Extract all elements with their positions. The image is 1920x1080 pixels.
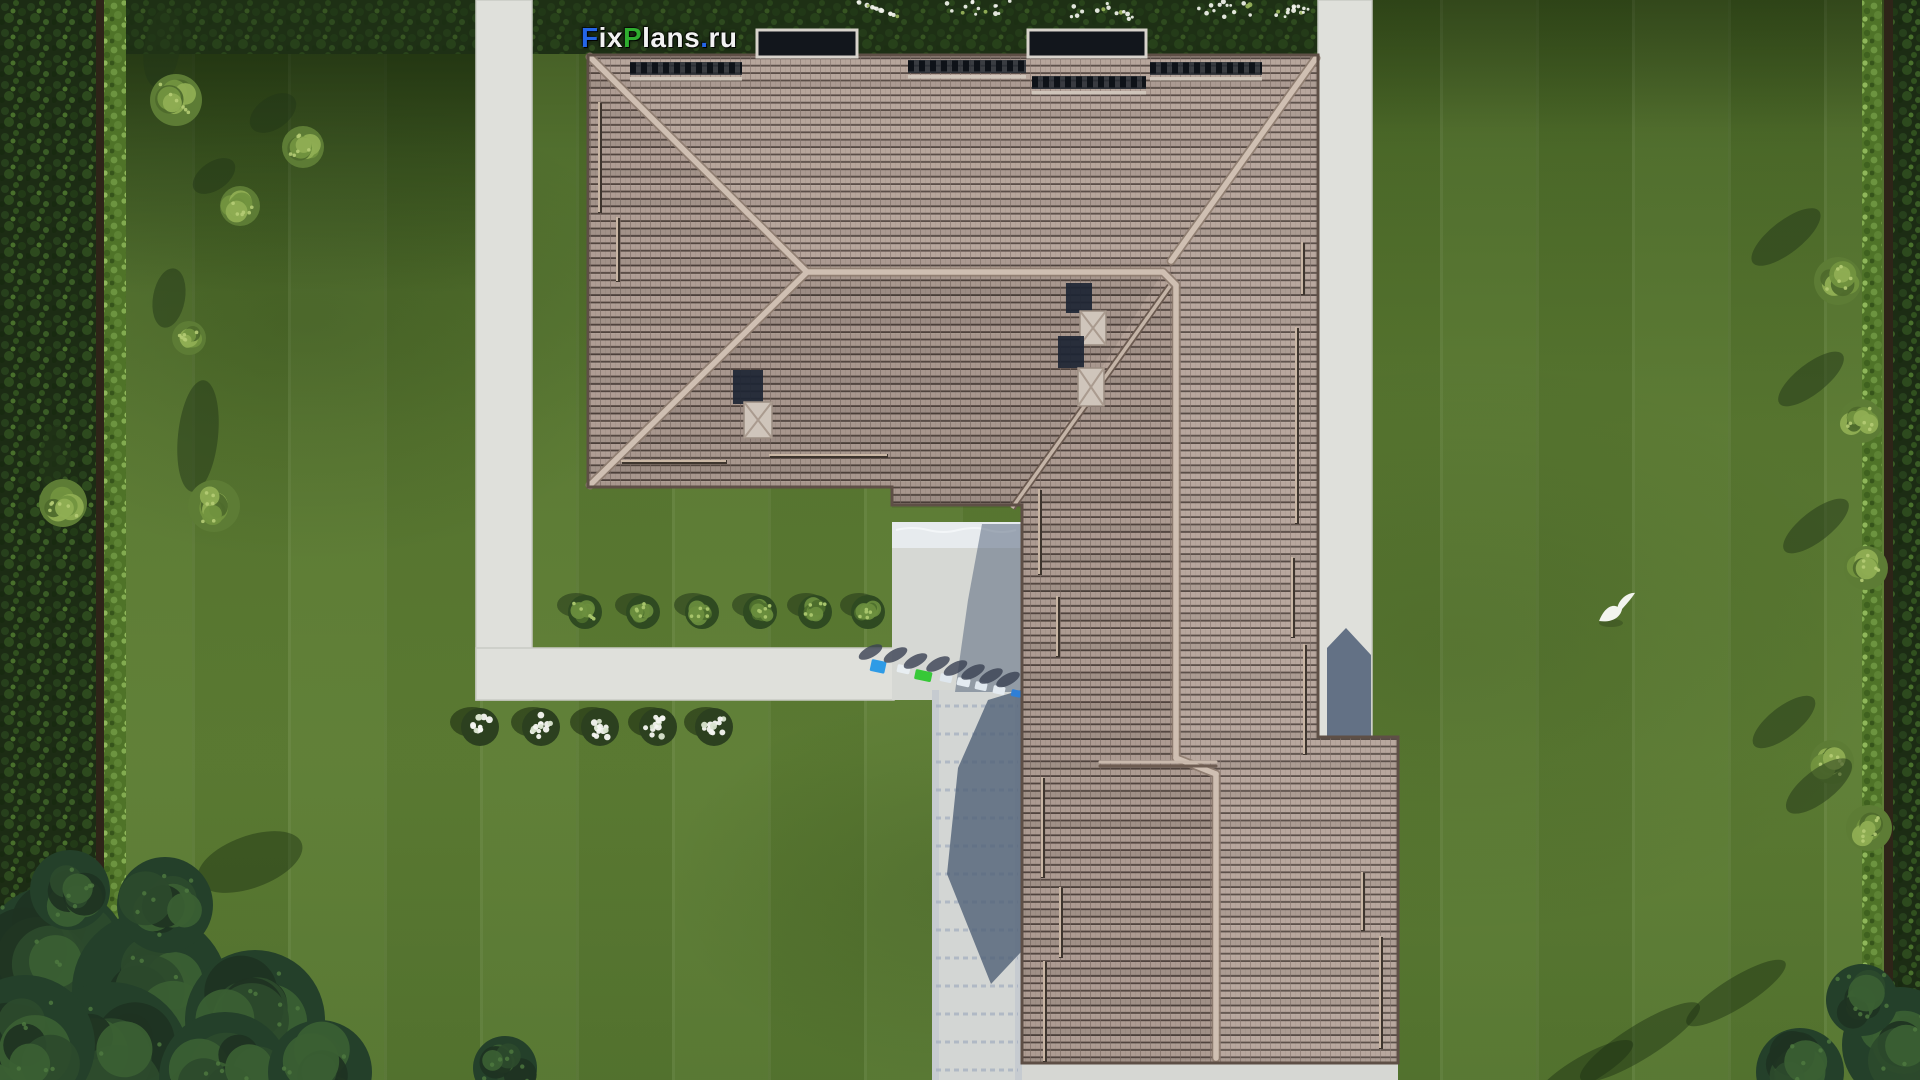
dormer-notch xyxy=(757,30,857,57)
snow-guard-bar xyxy=(617,217,618,282)
snow-guard-bar xyxy=(1044,961,1045,1062)
green-bush xyxy=(557,593,602,629)
snow-guard-bar xyxy=(621,461,727,462)
rear-apron xyxy=(1022,1063,1398,1080)
bird-body xyxy=(1595,592,1640,623)
white-flower-bush xyxy=(511,707,560,746)
flower-bed-row xyxy=(450,707,733,746)
outer-foliage-right xyxy=(1893,0,1920,1080)
hedge-right xyxy=(1862,0,1920,1080)
driveway-edge-left xyxy=(932,690,939,1080)
snow-guard-bar xyxy=(1296,327,1297,524)
green-bush xyxy=(732,593,777,629)
white-flower-bush xyxy=(684,707,733,746)
dark-tree-canopy xyxy=(30,850,110,930)
green-bush xyxy=(674,593,719,629)
green-bush xyxy=(615,593,660,629)
roof-vent-strip xyxy=(1032,76,1146,95)
watermark-part: P xyxy=(623,22,642,53)
bush-row xyxy=(557,593,885,629)
white-flower-bush xyxy=(628,707,677,746)
walkway-left-vertical xyxy=(476,0,532,700)
roof-vent-strip xyxy=(630,62,742,81)
watermark-part: ru xyxy=(708,22,737,53)
aerial-render-scene: FixPlans.ru xyxy=(0,0,1920,1080)
watermark-logo: FixPlans.ru xyxy=(581,22,737,54)
watermark-part: F xyxy=(581,22,599,53)
tree-shadow xyxy=(1745,687,1823,757)
dark-tree-canopy xyxy=(473,1036,537,1080)
snow-guard-bar xyxy=(1302,242,1303,295)
tree-shadow xyxy=(1743,199,1829,276)
dark-tree-canopy xyxy=(1826,964,1898,1036)
tree-shadow xyxy=(1679,950,1793,1037)
garden-tree xyxy=(1743,199,1862,305)
dark-tree-canopy xyxy=(117,857,213,953)
chimney-shadow xyxy=(1058,336,1084,368)
chimney-shadow xyxy=(733,370,763,404)
walkway-right-vertical xyxy=(1318,0,1372,737)
watermark-part: ix xyxy=(599,22,623,53)
flying-bird xyxy=(1595,592,1640,627)
snow-guard-bar xyxy=(1060,887,1061,958)
snow-guard-bar xyxy=(1042,777,1043,878)
lawn-shade-top-right xyxy=(1372,0,1920,130)
tree-shadow xyxy=(1775,490,1857,563)
dormer-notch xyxy=(1028,30,1146,57)
snow-guard-bar xyxy=(599,102,600,213)
snow-guard-bar xyxy=(1380,936,1381,1049)
fence-right xyxy=(1884,0,1893,1080)
snow-guard-bar xyxy=(1057,596,1058,657)
walkway-left-horizontal xyxy=(476,648,894,700)
watermark-part: lans xyxy=(642,22,700,53)
scene-canvas xyxy=(0,0,1920,1080)
snow-guard-bar xyxy=(1362,872,1363,931)
tree-shadow xyxy=(1770,343,1852,416)
hedge-strip-right xyxy=(1862,0,1882,1080)
green-bush xyxy=(787,593,832,629)
roof-vent-strip xyxy=(908,60,1026,79)
tree-shadow xyxy=(172,378,223,494)
white-flower-bush xyxy=(450,707,499,746)
green-bush xyxy=(840,593,885,629)
garden-tree xyxy=(172,378,240,532)
snow-guard-bar xyxy=(1304,644,1305,755)
snow-guard-bar xyxy=(769,455,888,456)
white-flower-bush xyxy=(570,707,619,746)
snow-guard-bar xyxy=(1292,557,1293,638)
dark-tree-canopy xyxy=(1756,1028,1844,1080)
roof-vent-strip xyxy=(1150,62,1262,81)
snow-guard-bar xyxy=(1039,489,1040,575)
chimney-shadow xyxy=(1066,283,1092,313)
